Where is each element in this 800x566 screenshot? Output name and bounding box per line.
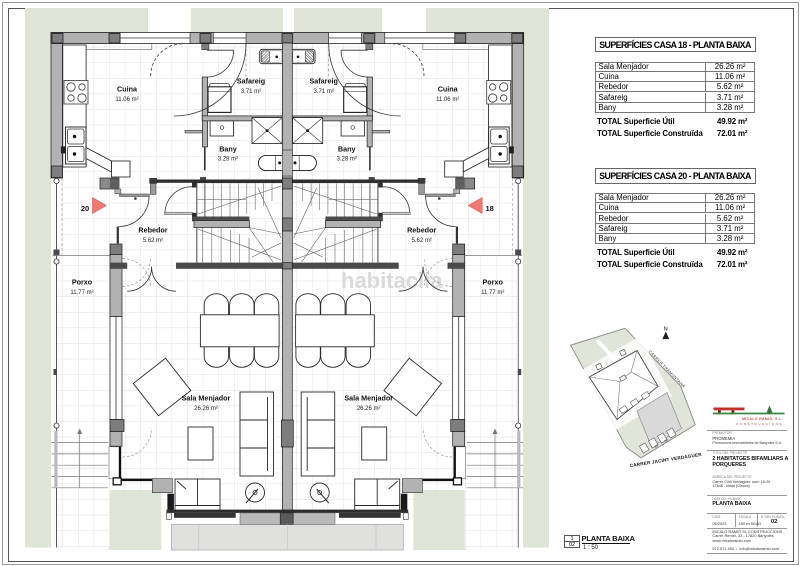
svg-text:11.06 m²: 11.06 m²: [115, 97, 138, 103]
svg-text:Safareig: Safareig: [310, 77, 338, 86]
svg-text:3.28 m²: 3.28 m²: [218, 157, 238, 163]
svg-text:Cuina: Cuina: [438, 85, 459, 94]
svg-text:11.77 m²: 11.77 m²: [70, 290, 93, 296]
svg-text:Safareig: Safareig: [237, 77, 265, 86]
svg-text:26.26 m²: 26.26 m²: [194, 406, 218, 412]
svg-text:26.26 m²: 26.26 m²: [357, 406, 381, 412]
svg-text:MICALÓ RAMIÓ, S.L.: MICALÓ RAMIÓ, S.L.: [742, 416, 783, 421]
svg-text:Porxo: Porxo: [483, 278, 504, 287]
svg-text:3.71 m²: 3.71 m²: [241, 89, 261, 95]
svg-text:5.62 m²: 5.62 m²: [412, 238, 432, 244]
svg-text:11.77 m²: 11.77 m²: [481, 290, 504, 296]
svg-text:Bany: Bany: [219, 145, 237, 154]
svg-text:Cuina: Cuina: [117, 85, 138, 94]
svg-text:Rebedor: Rebedor: [138, 226, 167, 235]
svg-text:Porxo: Porxo: [72, 278, 93, 287]
svg-text:Rebedor: Rebedor: [407, 226, 436, 235]
svg-text:3.71 m²: 3.71 m²: [314, 89, 334, 95]
svg-text:5.62 m²: 5.62 m²: [143, 238, 163, 244]
svg-text:CONSTRUCCIONS: CONSTRUCCIONS: [736, 422, 783, 426]
svg-text:habitaclia: habitaclia: [341, 268, 443, 293]
svg-text:18: 18: [486, 204, 494, 213]
svg-text:11.06 m²: 11.06 m²: [436, 97, 459, 103]
svg-text:Sala Menjador: Sala Menjador: [344, 394, 393, 403]
svg-text:20: 20: [81, 204, 89, 213]
svg-text:3.28 m²: 3.28 m²: [337, 157, 357, 163]
svg-text:Sala Menjador: Sala Menjador: [182, 394, 231, 403]
svg-text:Bany: Bany: [338, 145, 356, 154]
